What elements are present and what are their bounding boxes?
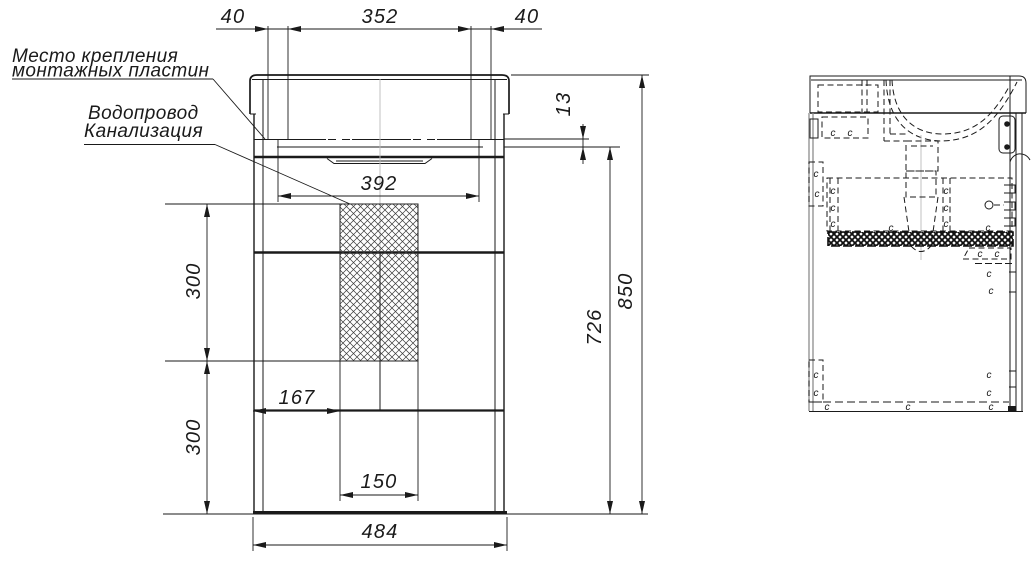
screw-mark: c [987,269,992,280]
wall-bracket [999,116,1030,162]
screw-mark: c [831,186,836,197]
dim-top-plates: 40 352 40 [216,6,542,32]
screw-mark: c [995,249,1000,260]
dim-plate-span-label: 352 [362,6,399,28]
screw-mark: c [815,189,820,200]
screw-mark: c [978,249,983,260]
screw-mark: c [825,402,830,413]
screw-mark: c [889,223,894,234]
screw-mark: c [848,128,853,139]
screw-mark: c [944,203,949,214]
basin-profile-inner [892,80,1010,134]
vanity-drawing-svg: 40 352 40 392 300 300 [0,0,1033,569]
washbasin-outline [250,75,509,114]
plumbing-note-line2: Канализация [84,121,203,142]
sink-rim-path [250,75,509,114]
side-washbasin-section [810,76,1026,141]
screw-mark: c [987,388,992,399]
dim-zone-width-label: 150 [361,471,398,493]
hanging-hook [1010,154,1030,162]
dim-plate-offset-left-label: 40 [221,6,246,28]
mounting-note-line2: монтажных пластин [12,61,210,82]
side-cabinet-outline [809,113,1023,412]
screw-mark: c [814,370,819,381]
screw-mark: c [987,370,992,381]
front-clip [810,119,818,138]
screw-mark: c [944,186,949,197]
screw-mark: c [831,203,836,214]
dim-rim-gap-label: 13 [553,92,575,117]
hatched-rail-strip [828,232,1013,264]
dim-overall-height-label: 850 [615,273,637,310]
dim-upper-zone-label: 300 [183,263,205,300]
screw-mark: c [944,219,949,230]
technical-drawing-canvas: 40 352 40 392 300 300 [0,0,1033,569]
dim-lower-zone-label: 300 [183,419,205,456]
dim-upper-zone: 300 [183,204,210,361]
dim-zone-width: 150 [340,471,418,498]
screw-mark: c [831,219,836,230]
side-view: c c c c c c c c c c c c c c c c c c c c … [809,76,1030,413]
dim-carcass-height-label: 726 [584,309,606,346]
screw-mark: c [906,402,911,413]
dim-overall-width: 484 [253,521,507,548]
dim-carcass-height: 726 [584,147,613,514]
dim-left-offset-label: 167 [279,387,316,409]
dim-rim-gap: 13 [553,92,586,164]
dim-plate-offset-right-label: 40 [515,6,540,28]
basin-profile-outer [886,80,1017,141]
screw-mark: c [814,388,819,399]
utility-zone-hatch [340,204,418,361]
screw-mark: c [989,402,994,413]
screw-mark: c [831,128,836,139]
drip-groove [327,159,432,164]
screw-mark: c [989,286,994,297]
screw-mark: c [814,169,819,180]
screw-mark: c [986,223,991,234]
dim-overall-width-label: 484 [362,521,399,543]
front-view: 40 352 40 392 300 300 [12,6,649,551]
dim-mount-centers-label: 392 [361,173,398,195]
plumbing-note: Водопровод Канализация [84,103,350,204]
dim-lower-zone: 300 [183,361,210,514]
dim-overall-height: 850 [615,75,645,514]
